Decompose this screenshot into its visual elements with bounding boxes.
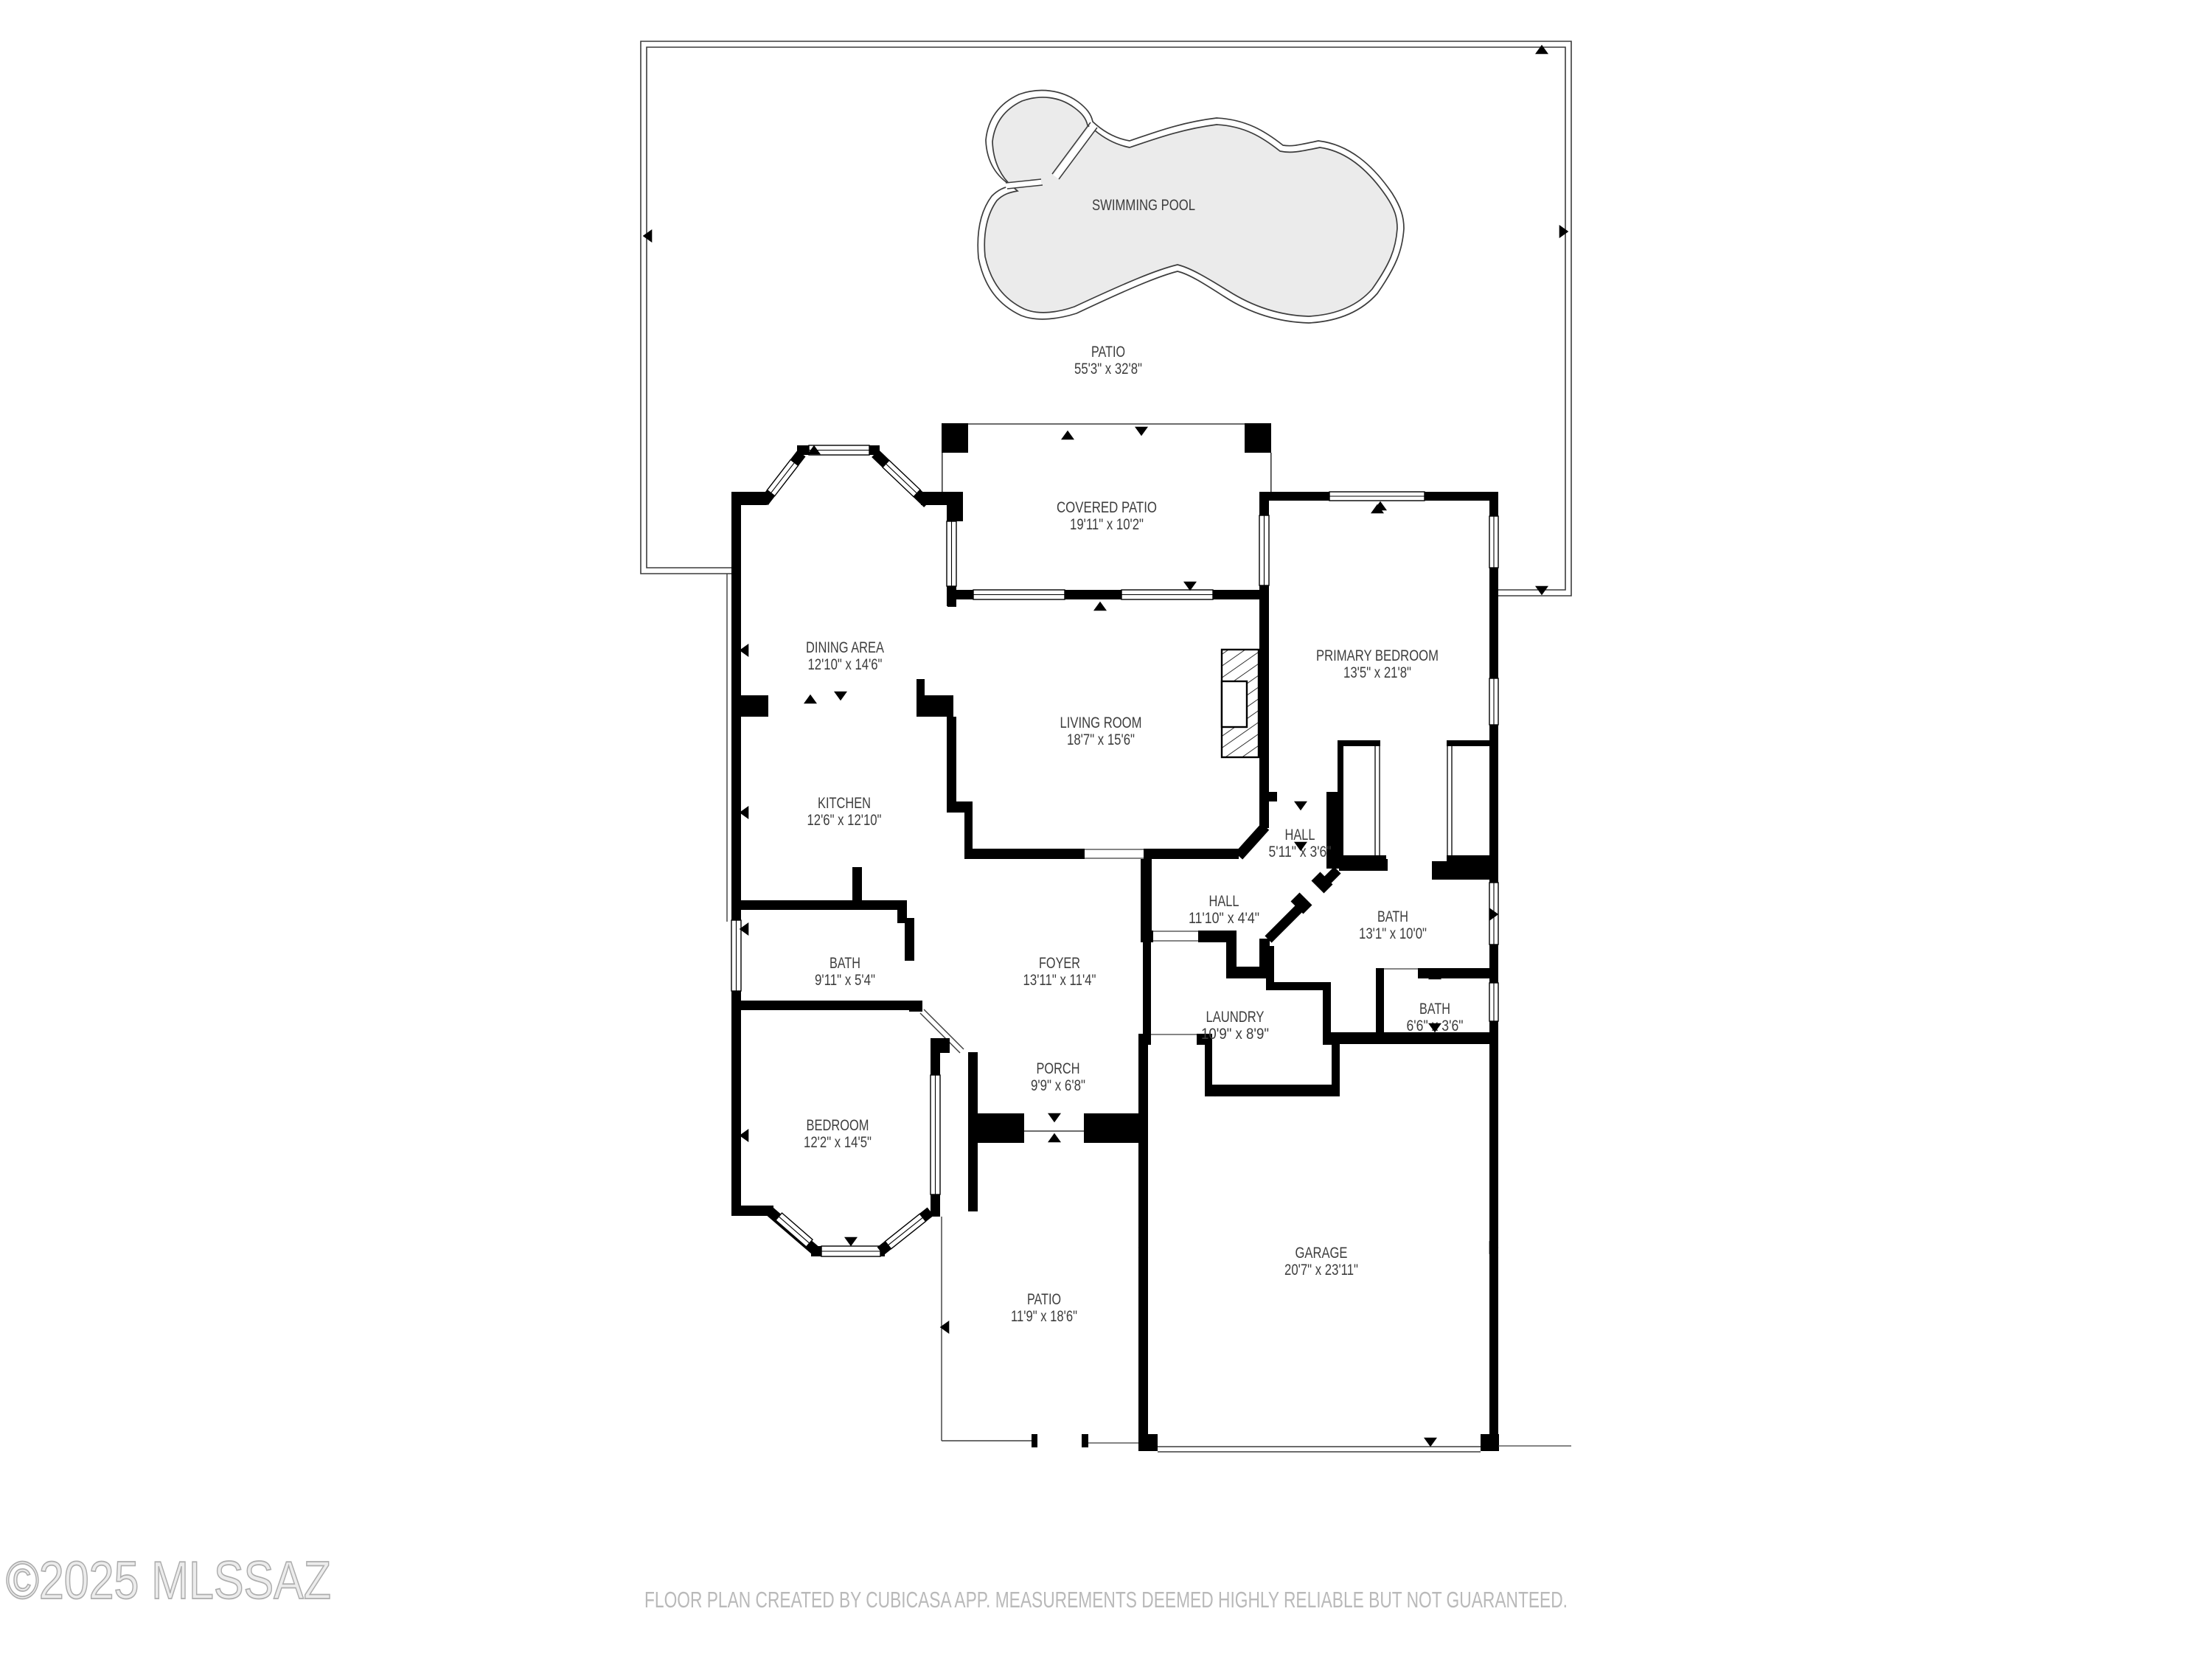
svg-text:HALL: HALL [1209, 892, 1239, 910]
svg-text:PATIO: PATIO [1027, 1290, 1061, 1308]
svg-text:12'10" x 14'6": 12'10" x 14'6" [808, 655, 883, 673]
svg-text:13'5" x 21'8": 13'5" x 21'8" [1343, 664, 1411, 681]
svg-text:20'7" x 23'11": 20'7" x 23'11" [1284, 1261, 1358, 1279]
svg-text:HALL: HALL [1285, 826, 1315, 844]
svg-text:KITCHEN: KITCHEN [818, 794, 871, 812]
svg-text:SWIMMING POOL: SWIMMING POOL [1092, 196, 1195, 214]
svg-text:10'9" x 8'9": 10'9" x 8'9" [1201, 1025, 1269, 1043]
svg-text:13'1" x 10'0": 13'1" x 10'0" [1359, 925, 1427, 942]
svg-text:COVERED PATIO: COVERED PATIO [1057, 498, 1157, 516]
svg-text:BATH: BATH [1377, 908, 1408, 925]
svg-text:PATIO: PATIO [1091, 343, 1125, 361]
svg-text:GARAGE: GARAGE [1295, 1244, 1348, 1262]
svg-text:PORCH: PORCH [1037, 1060, 1080, 1077]
svg-text:12'6" x 12'10": 12'6" x 12'10" [807, 811, 882, 829]
svg-text:13'11" x 11'4": 13'11" x 11'4" [1023, 971, 1096, 989]
svg-text:9'11" x 5'4": 9'11" x 5'4" [815, 971, 875, 989]
svg-text:12'2" x 14'5": 12'2" x 14'5" [804, 1133, 872, 1151]
svg-text:FLOOR PLAN CREATED BY CUBICASA: FLOOR PLAN CREATED BY CUBICASA APP. MEAS… [644, 1587, 1568, 1613]
svg-text:11'10" x 4'4": 11'10" x 4'4" [1189, 909, 1259, 927]
svg-text:FOYER: FOYER [1039, 954, 1080, 972]
svg-text:LAUNDRY: LAUNDRY [1206, 1008, 1265, 1026]
svg-text:18'7" x 15'6": 18'7" x 15'6" [1067, 731, 1135, 748]
svg-text:9'9" x 6'8": 9'9" x 6'8" [1031, 1077, 1085, 1094]
svg-text:BATH: BATH [1419, 1000, 1450, 1018]
svg-text:LIVING ROOM: LIVING ROOM [1060, 714, 1142, 731]
svg-text:BATH: BATH [829, 954, 860, 972]
svg-text:55'3" x 32'8": 55'3" x 32'8" [1074, 360, 1142, 378]
svg-text:©2025 MLSSAZ: ©2025 MLSSAZ [6, 1551, 331, 1610]
svg-text:DINING AREA: DINING AREA [806, 639, 884, 656]
svg-text:19'11" x 10'2": 19'11" x 10'2" [1070, 515, 1144, 533]
svg-text:BEDROOM: BEDROOM [807, 1116, 869, 1134]
svg-text:11'9" x 18'6": 11'9" x 18'6" [1011, 1307, 1077, 1325]
svg-text:PRIMARY BEDROOM: PRIMARY BEDROOM [1316, 647, 1439, 664]
